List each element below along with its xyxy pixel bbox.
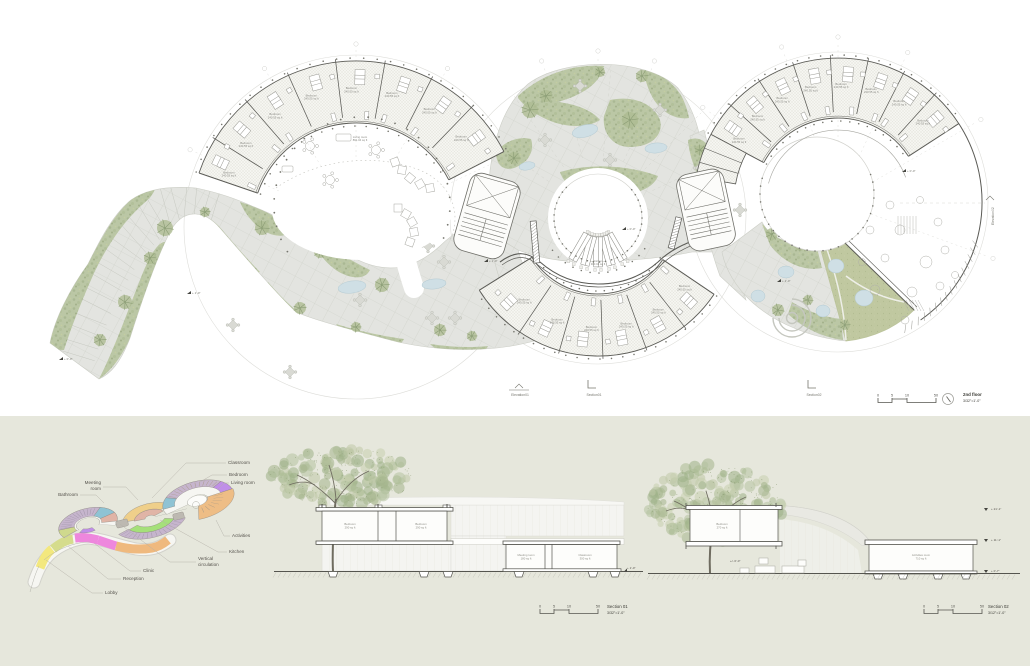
svg-text:240.55 sq ft: 240.55 sq ft bbox=[864, 90, 879, 94]
svg-text:10: 10 bbox=[905, 394, 909, 398]
svg-text:Living room: Living room bbox=[231, 480, 255, 485]
svg-text:290 sq ft: 290 sq ft bbox=[416, 525, 427, 529]
svg-text:Elevation01: Elevation01 bbox=[511, 393, 529, 397]
svg-text:290 sq ft: 290 sq ft bbox=[345, 525, 356, 529]
svg-text:3/32”=1’-0”: 3/32”=1’-0” bbox=[607, 611, 625, 615]
svg-text:Clinic: Clinic bbox=[143, 568, 155, 573]
svg-text:Meeting: Meeting bbox=[85, 480, 102, 485]
svg-text:240.55 sq ft: 240.55 sq ft bbox=[344, 89, 359, 93]
svg-text:+ 1'-0”: + 1'-0” bbox=[192, 291, 201, 295]
svg-text:240.55 sq ft: 240.55 sq ft bbox=[422, 110, 437, 114]
svg-text:240.55 sq ft: 240.55 sq ft bbox=[834, 85, 849, 89]
svg-text:240.55 sq ft: 240.55 sq ft bbox=[517, 301, 532, 305]
svg-text:+ 0'-0”: + 0'-0” bbox=[64, 357, 73, 361]
svg-text:300.04 sq ft: 300.04 sq ft bbox=[591, 262, 606, 266]
svg-text:240.55 sq ft: 240.55 sq ft bbox=[892, 102, 907, 106]
svg-text:240.55 sq ft: 240.55 sq ft bbox=[268, 115, 283, 119]
svg-text:+ 0'-0”: + 0'-0” bbox=[907, 169, 916, 173]
svg-text:240.55 sq ft: 240.55 sq ft bbox=[385, 94, 400, 98]
svg-text:Section02: Section02 bbox=[806, 393, 821, 397]
svg-text:180 sq ft: 180 sq ft bbox=[521, 556, 532, 560]
svg-text:room: room bbox=[91, 486, 102, 491]
svg-text:5: 5 bbox=[891, 394, 893, 398]
svg-text:240.55 sq ft: 240.55 sq ft bbox=[454, 138, 469, 142]
svg-text:5: 5 bbox=[553, 605, 555, 609]
svg-text:Activities: Activities bbox=[232, 533, 251, 538]
svg-text:240.55 sq ft: 240.55 sq ft bbox=[584, 328, 599, 332]
svg-text:50: 50 bbox=[596, 605, 600, 609]
svg-text:240.55 sq ft: 240.55 sq ft bbox=[239, 144, 254, 148]
svg-text:240.55 sq ft: 240.55 sq ft bbox=[775, 99, 790, 103]
svg-text:300 sq ft: 300 sq ft bbox=[580, 556, 591, 560]
svg-text:+/- 0’-0”: +/- 0’-0” bbox=[730, 559, 740, 563]
svg-text:+ 11’-1”: + 11’-1” bbox=[991, 538, 1001, 542]
svg-text:50: 50 bbox=[980, 605, 984, 609]
svg-text:710 sq ft: 710 sq ft bbox=[916, 556, 927, 560]
svg-text:Section 02: Section 02 bbox=[988, 604, 1009, 609]
svg-text:240.55 sq ft: 240.55 sq ft bbox=[619, 325, 634, 329]
svg-text:+ 1’-0”: + 1’-0” bbox=[627, 566, 636, 570]
svg-text:240.55 sq ft: 240.55 sq ft bbox=[916, 122, 931, 126]
svg-text:circulation: circulation bbox=[198, 562, 219, 567]
svg-text:Elevation02: Elevation02 bbox=[991, 207, 995, 225]
svg-text:+ 1'-0”: + 1'-0” bbox=[782, 279, 791, 283]
svg-text:Section01: Section01 bbox=[586, 393, 601, 397]
svg-text:Kitchen: Kitchen bbox=[229, 549, 245, 554]
svg-text:240.55 sq ft: 240.55 sq ft bbox=[677, 287, 692, 291]
svg-text:5: 5 bbox=[937, 605, 939, 609]
svg-text:3/32”=1’-0”: 3/32”=1’-0” bbox=[963, 399, 981, 403]
svg-text:+ 21’-1”: + 21’-1” bbox=[991, 507, 1001, 511]
svg-text:Section 01: Section 01 bbox=[607, 604, 628, 609]
svg-text:+ 1'-0”: + 1'-0” bbox=[489, 259, 498, 263]
svg-text:Bedroom: Bedroom bbox=[229, 472, 248, 477]
svg-text:2nd floor: 2nd floor bbox=[963, 392, 982, 397]
svg-text:+ 0'-0”: + 0'-0” bbox=[627, 227, 636, 231]
svg-text:240.55 sq ft: 240.55 sq ft bbox=[304, 97, 319, 101]
svg-text:240.55 sq ft: 240.55 sq ft bbox=[651, 311, 666, 315]
svg-text:10: 10 bbox=[567, 605, 571, 609]
svg-text:Bathroom: Bathroom bbox=[58, 492, 78, 497]
svg-text:891.04 sq ft: 891.04 sq ft bbox=[353, 138, 368, 142]
svg-text:0: 0 bbox=[539, 605, 541, 609]
svg-text:Lobby: Lobby bbox=[105, 590, 118, 595]
svg-text:0: 0 bbox=[923, 605, 925, 609]
svg-text:240.55 sq ft: 240.55 sq ft bbox=[803, 88, 818, 92]
svg-text:+ 0’-7”: + 0’-7” bbox=[991, 569, 1000, 573]
svg-text:10: 10 bbox=[951, 605, 955, 609]
svg-text:270 sq ft: 270 sq ft bbox=[717, 525, 728, 529]
svg-text:240.55 sq ft: 240.55 sq ft bbox=[222, 174, 237, 178]
svg-text:50: 50 bbox=[934, 394, 938, 398]
svg-text:240.55 sq ft: 240.55 sq ft bbox=[750, 117, 765, 121]
svg-text:240.55 sq ft: 240.55 sq ft bbox=[550, 321, 565, 325]
svg-text:Reception: Reception bbox=[123, 576, 144, 581]
svg-text:3/12”=1’-0”: 3/12”=1’-0” bbox=[988, 611, 1006, 615]
svg-text:Vertical: Vertical bbox=[198, 556, 213, 561]
svg-text:0: 0 bbox=[877, 394, 879, 398]
svg-text:240.55 sq ft: 240.55 sq ft bbox=[732, 140, 747, 144]
svg-text:Classroom: Classroom bbox=[228, 460, 250, 465]
